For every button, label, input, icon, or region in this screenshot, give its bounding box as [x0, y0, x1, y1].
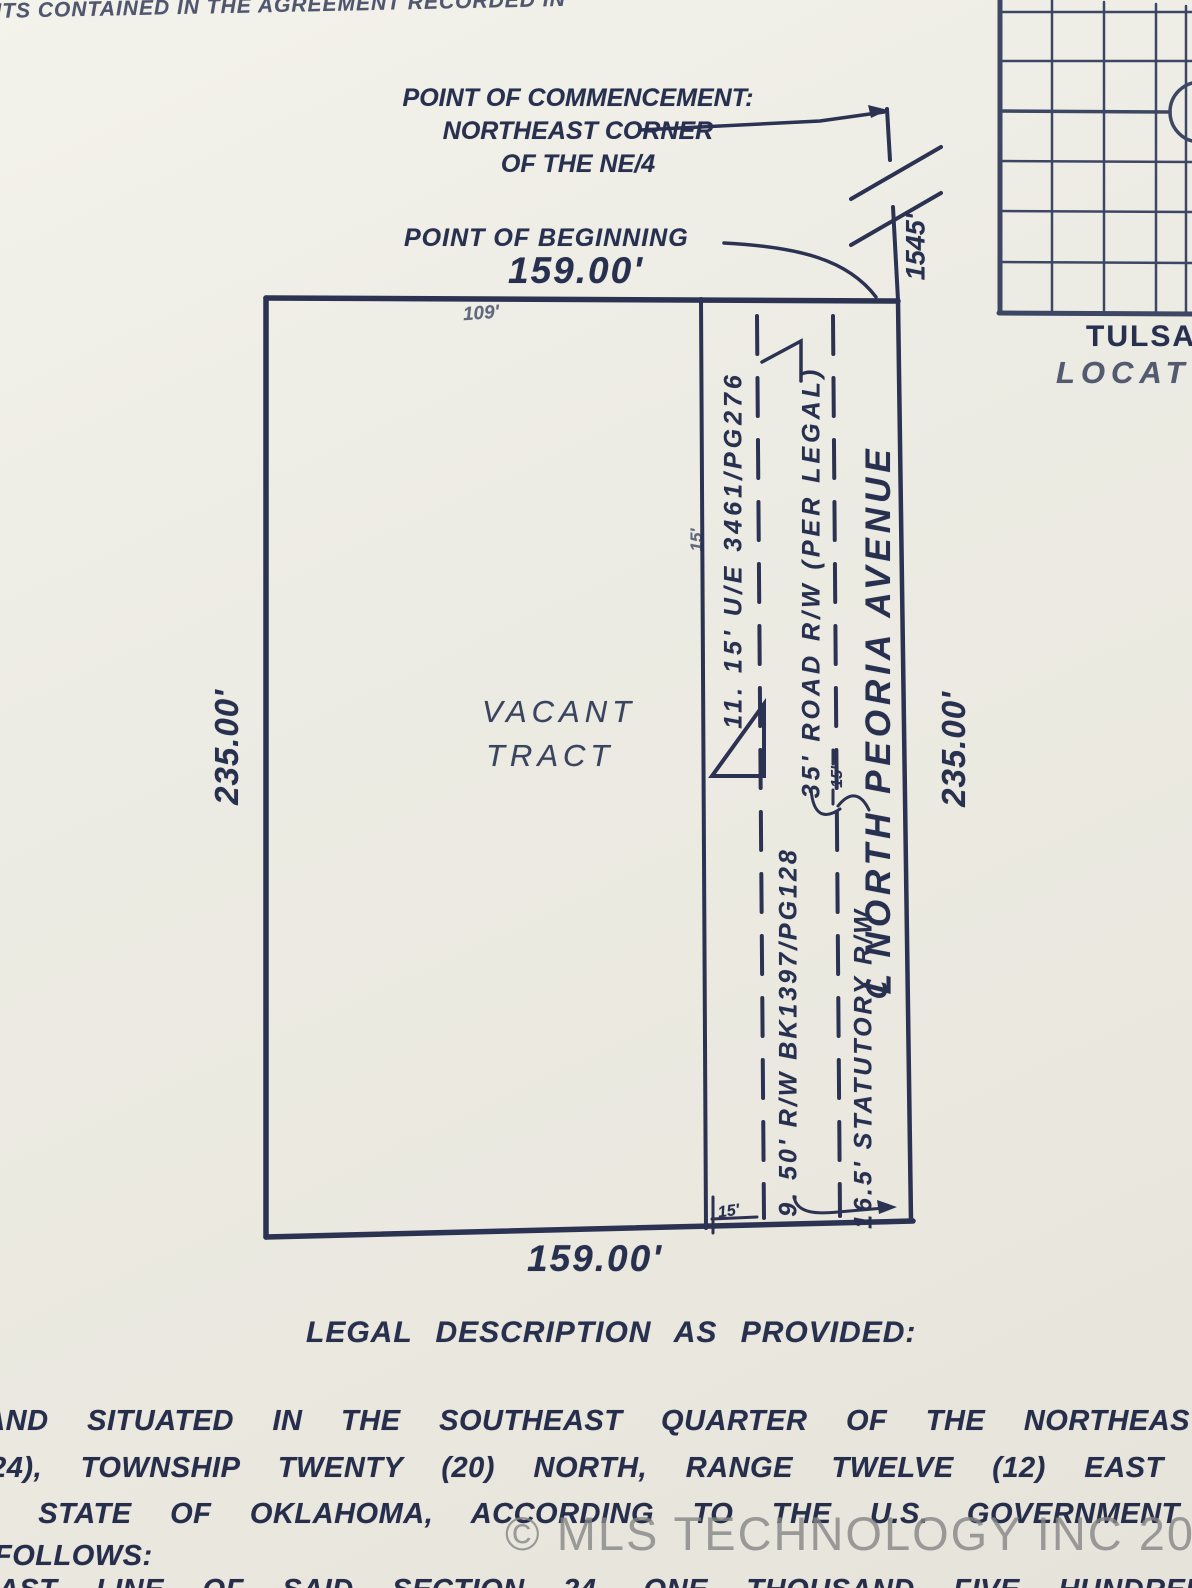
pob-leader-line	[724, 243, 876, 297]
bottom-15ft-label: 15'	[717, 1202, 741, 1223]
ue-leader-bracket	[762, 341, 801, 381]
legal-description-heading: LEGAL DESCRIPTION AS PROVIDED:	[306, 1316, 916, 1350]
tract-east-line	[701, 299, 706, 1228]
rw50-label: 9. 50' R/W BK1397/PG128	[775, 847, 804, 1217]
tract-north-line	[266, 298, 898, 301]
ue-width-label: 15'	[687, 529, 707, 552]
legal-line-1: LAND SITUATED IN THE SOUTHEAST QUARTER O…	[0, 1405, 1192, 1438]
section-distance-label: 1545'	[901, 214, 932, 281]
map-title: TULSA	[1086, 320, 1192, 354]
mid-15ft-label: 15'	[829, 766, 847, 788]
dimension-west: 235.00'	[208, 689, 246, 805]
map-highlight-circle	[1170, 82, 1192, 142]
map-subtitle: LOCAT	[1056, 355, 1190, 391]
statutory-rw-label: 16.5' STATUTORY R/W	[850, 907, 879, 1229]
dimension-north: 159.00'	[508, 250, 644, 292]
road-rw-label: 35' ROAD R/W (PER LEGAL)	[798, 366, 827, 799]
section-line-upper	[887, 109, 890, 160]
location-map-grid	[999, 0, 1192, 314]
legal-line-4: FOLLOWS:	[0, 1540, 153, 1573]
poc-line-1: POINT OF COMMENCEMENT:	[368, 82, 788, 115]
watermark: © MLS TECHNOLOGY INC 2026	[505, 1506, 1192, 1561]
tract-south-line	[266, 1221, 913, 1237]
tract-label-line1: VACANT	[482, 694, 636, 730]
dimension-top-offset: 109'	[462, 302, 500, 326]
legal-line-2: (24), TOWNSHIP TWENTY (20) NORTH, RANGE …	[0, 1452, 1192, 1485]
poc-line-3: OF THE NE/4	[368, 148, 788, 181]
legal-line-5: EAST LINE OF SAID SECTION 24, ONE THOUSA…	[0, 1574, 1192, 1588]
point-of-commencement-label: POINT OF COMMENCEMENT: NORTHEAST CORNER …	[368, 82, 788, 181]
dimension-east: 235.00'	[935, 691, 973, 807]
avenue-line	[898, 301, 911, 1221]
utility-easement-label: 11. 15' U/E 3461/PG276	[720, 371, 749, 729]
point-of-beginning-label: POINT OF BEGINNING	[404, 224, 689, 253]
poc-line-2: NORTHEAST CORNER	[368, 115, 788, 148]
break-symbol	[851, 147, 941, 199]
dimension-south: 159.00'	[527, 1238, 663, 1280]
tract-label-line2: TRACT	[486, 738, 614, 774]
survey-plat-page: NTS CONTAINED IN THE AGREEMENT RECORDED …	[0, 0, 1192, 1588]
rw50-arrowhead	[877, 1200, 897, 1214]
